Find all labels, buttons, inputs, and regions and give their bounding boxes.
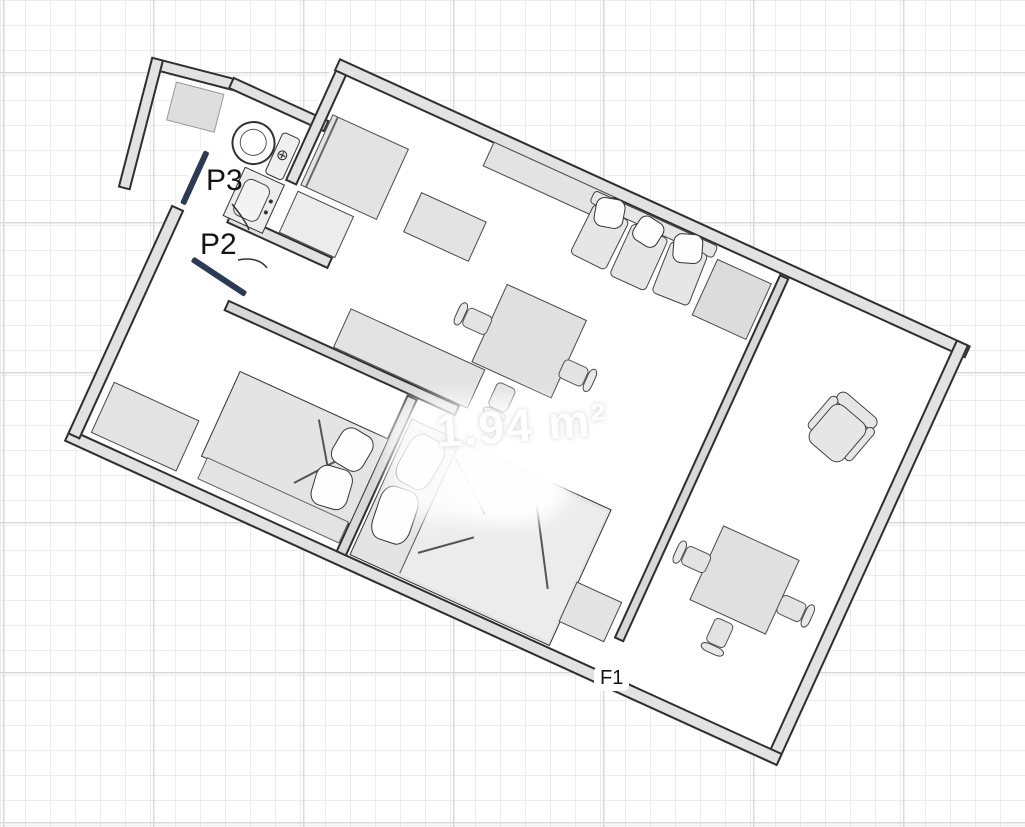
- sofa-pillow: [592, 195, 627, 230]
- sink-basin: [231, 176, 273, 224]
- sofa-pillow: [672, 232, 704, 264]
- grid-paper-background: ⊕: [0, 0, 1025, 827]
- faucet-dot: [268, 199, 273, 204]
- doormat: [166, 82, 224, 133]
- faucet-dot: [263, 210, 268, 215]
- terrace-left-wall: [118, 57, 164, 191]
- blanket-fold: [318, 419, 329, 468]
